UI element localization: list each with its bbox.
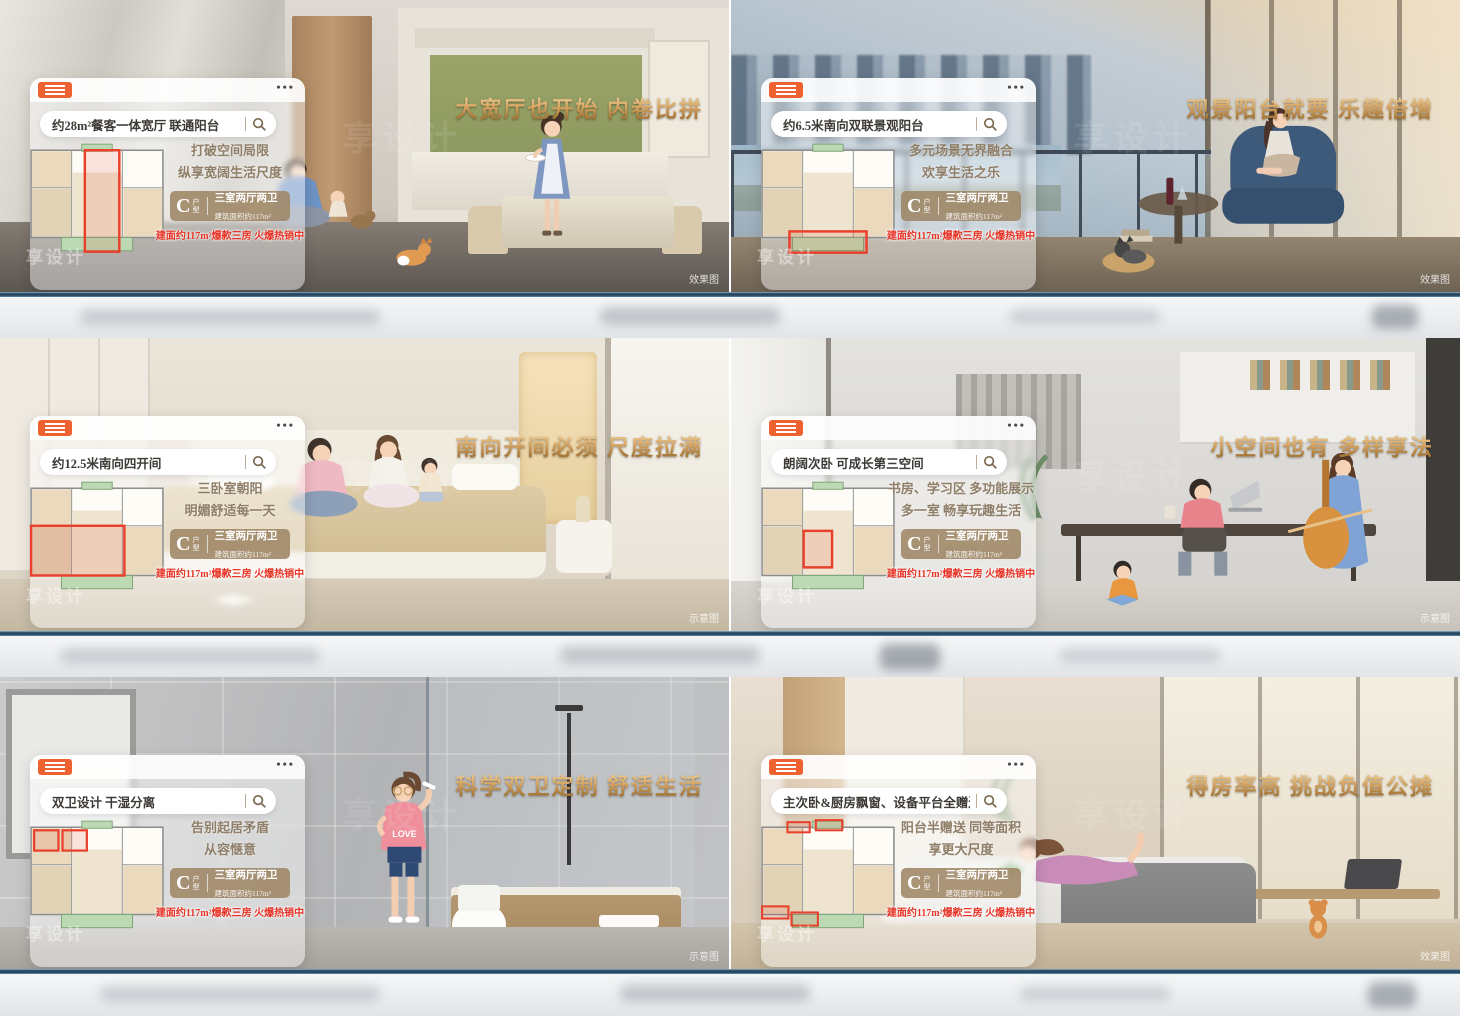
watermark: 享设计 xyxy=(757,582,817,607)
laptop xyxy=(1344,859,1402,889)
tagline: 书房、学习区 多功能展示多一室 畅享玩趣生活 xyxy=(887,478,1035,522)
search-divider xyxy=(245,117,246,131)
browser-card-bar: ••• xyxy=(30,755,305,779)
panel-headline: 大宽厅也开始 内卷比拼 xyxy=(455,92,703,124)
promo-text: 建面约117m²爆款三房 火爆热销中 xyxy=(142,565,318,580)
search-divider xyxy=(976,117,977,131)
toilet xyxy=(452,903,506,951)
more-dots-icon[interactable]: ••• xyxy=(1007,80,1026,95)
unit-badge: C户型 三室两厅两卫建筑面积约117m² xyxy=(901,529,1021,559)
search-divider xyxy=(976,794,977,808)
promo-text: 建面约117m²爆款三房 火爆热销中 xyxy=(873,565,1049,580)
floorplan-highlight xyxy=(31,526,124,576)
panel-headline: 小空间也有 多样享法 xyxy=(1210,430,1434,462)
watermark: 享设计 xyxy=(26,243,86,268)
tagline: 阳台半赠送 同等面积享更大尺度 xyxy=(887,817,1035,861)
dark-cabinet xyxy=(1426,338,1460,631)
watermark: 享设计 xyxy=(343,788,463,837)
unit-badge: C户型 三室两厅两卫建筑面积约117m² xyxy=(901,868,1021,898)
browser-card-bar: ••• xyxy=(761,78,1036,102)
watermark: 享设计 xyxy=(1074,788,1194,837)
promo-text: 建面约117m²爆款三房 火爆热销中 xyxy=(873,227,1049,242)
hamburger-menu-icon[interactable] xyxy=(769,82,803,98)
blanket xyxy=(1061,863,1256,959)
unit-badge: C户型 三室两厅两卫建筑面积约117m² xyxy=(170,529,290,559)
watermark: 享设计 xyxy=(26,920,86,945)
tagline: 打破空间局限纵享宽阔生活尺度 xyxy=(156,140,304,184)
watermark: 享设计 xyxy=(343,449,463,498)
poster-grid: 大宽厅也开始 内卷比拼 ••• 约28m²餐客一体宽厅 联通阳台 xyxy=(0,0,1460,1016)
watermark: 享设计 xyxy=(1074,449,1194,498)
svg-text:LOVE: LOVE xyxy=(392,829,416,839)
panel-headline: 南向开间必须 尺度拉满 xyxy=(455,430,703,462)
browser-card-bar: ••• xyxy=(30,78,305,102)
tagline: 告别起居矛盾从容惬意 xyxy=(156,817,304,861)
blurred-strip xyxy=(0,636,1460,677)
poster-view-balcony: 观景阳台就要 乐趣倍增 ••• 约6.5米南向双联景观阳台 xyxy=(731,0,1460,292)
search-text: 主次卧&厨房飘窗、设备平台全赠送 xyxy=(771,792,970,811)
floorplan-highlight xyxy=(34,830,58,850)
poster-flex-room: 小空间也有 多样享法 ••• 朗阔次卧 可成长第三空间 xyxy=(731,338,1460,631)
search-divider xyxy=(245,455,246,469)
photo-tag: 示意图 xyxy=(689,610,719,625)
search-input[interactable]: 约6.5米南向双联景观阳台 xyxy=(771,111,1007,137)
promo-text: 建面约117m²爆款三房 火爆热销中 xyxy=(873,904,1049,919)
photo-tag: 效果图 xyxy=(1420,271,1450,286)
floorplan-highlight xyxy=(85,150,119,251)
browser-card-bar: ••• xyxy=(761,755,1036,779)
poster-wide-living: 大宽厅也开始 内卷比拼 ••• 约28m²餐客一体宽厅 联通阳台 xyxy=(0,0,729,292)
watermark: 享设计 xyxy=(1074,111,1194,160)
search-input[interactable]: 主次卧&厨房飘窗、设备平台全赠送 xyxy=(771,788,1007,814)
watermark: 享设计 xyxy=(757,243,817,268)
hamburger-menu-icon[interactable] xyxy=(38,82,72,98)
browser-card-bar: ••• xyxy=(30,416,305,440)
hamburger-menu-icon[interactable] xyxy=(38,759,72,775)
magnifier-icon xyxy=(983,117,998,132)
magnifier-icon xyxy=(252,455,267,470)
more-dots-icon[interactable]: ••• xyxy=(1007,418,1026,433)
more-dots-icon[interactable]: ••• xyxy=(276,418,295,433)
dining-table xyxy=(502,196,674,248)
more-dots-icon[interactable]: ••• xyxy=(1007,757,1026,772)
unit-badge: C户型 三室两厅两卫建筑面积约117m² xyxy=(170,191,290,221)
search-input[interactable]: 约28m²餐客一体宽厅 联通阳台 xyxy=(40,111,276,137)
nightstand xyxy=(556,520,612,576)
unit-badge: C户型 三室两厅两卫建筑面积约117m² xyxy=(901,191,1021,221)
floorplan-highlight xyxy=(63,830,87,850)
search-divider xyxy=(976,455,977,469)
vanity xyxy=(451,887,681,953)
unit-badge: C户型 三室两厅两卫建筑面积约117m² xyxy=(170,868,290,898)
promo-text: 建面约117m²爆款三房 火爆热销中 xyxy=(142,227,318,242)
chair xyxy=(468,206,508,254)
desk xyxy=(1061,524,1376,536)
browser-card-bar: ••• xyxy=(761,416,1036,440)
search-divider xyxy=(245,794,246,808)
photo-tag: 效果图 xyxy=(689,271,719,286)
search-text: 朗阔次卧 可成长第三空间 xyxy=(771,453,970,472)
search-text: 约12.5米南向四开间 xyxy=(40,453,239,472)
more-dots-icon[interactable]: ••• xyxy=(276,80,295,95)
poster-south-bays: 南向开间必须 尺度拉满 ••• 约12.5米南向四开间 xyxy=(0,338,729,631)
window-wall xyxy=(1205,0,1460,292)
search-input[interactable]: 朗阔次卧 可成长第三空间 xyxy=(771,449,1007,475)
floorplan-highlight xyxy=(816,820,842,830)
photo-tag: 示意图 xyxy=(1420,610,1450,625)
books xyxy=(1250,360,1400,390)
hamburger-menu-icon[interactable] xyxy=(38,420,72,436)
search-text: 约28m²餐客一体宽厅 联通阳台 xyxy=(40,115,239,134)
hamburger-menu-icon[interactable] xyxy=(769,420,803,436)
magnifier-icon xyxy=(983,794,998,809)
poster-dual-bath: LOVE 科学双卫定制 舒适生活 ••• 双卫设计 干湿分离 xyxy=(0,677,729,969)
panel-headline: 得房率高 挑战负值公摊 xyxy=(1186,769,1434,801)
search-text: 约6.5米南向双联景观阳台 xyxy=(771,115,970,134)
search-input[interactable]: 双卫设计 干湿分离 xyxy=(40,788,276,814)
more-dots-icon[interactable]: ••• xyxy=(276,757,295,772)
magnifier-icon xyxy=(252,117,267,132)
floorplan-highlight xyxy=(804,531,832,568)
divider-band xyxy=(0,969,1460,1016)
poster-gift-area: 得房率高 挑战负值公摊 ••• 主次卧&厨房飘窗、设备平台全赠送 xyxy=(731,677,1460,969)
floorplan-highlight xyxy=(762,906,788,918)
blurred-strip xyxy=(0,974,1460,1016)
photo-tag: 效果图 xyxy=(1420,948,1450,963)
shower-head xyxy=(555,705,583,711)
divider-band xyxy=(0,292,1460,338)
divider-band xyxy=(0,631,1460,677)
panel-headline: 科学双卫定制 舒适生活 xyxy=(455,769,703,801)
magnifier-icon xyxy=(252,794,267,809)
shower-glass xyxy=(426,677,695,929)
search-text: 双卫设计 干湿分离 xyxy=(40,792,239,811)
watermark: 享设计 xyxy=(757,920,817,945)
watermark: 享设计 xyxy=(343,111,463,160)
pillow xyxy=(452,464,518,490)
chair xyxy=(662,206,702,254)
panel-headline: 观景阳台就要 乐趣倍增 xyxy=(1186,92,1434,124)
towel xyxy=(599,915,659,927)
blurred-strip xyxy=(0,297,1460,338)
watermark: 享设计 xyxy=(26,582,86,607)
hamburger-menu-icon[interactable] xyxy=(769,759,803,775)
promo-text: 建面约117m²爆款三房 火爆热销中 xyxy=(142,904,318,919)
tagline: 多元场景无界融合欢享生活之乐 xyxy=(887,140,1035,184)
photo-tag: 示意图 xyxy=(689,948,719,963)
tagline: 三卧室朝阳明媚舒适每一天 xyxy=(156,478,304,522)
lamp xyxy=(576,496,590,522)
desk xyxy=(1230,889,1440,899)
floorplan-highlight xyxy=(787,822,809,832)
magnifier-icon xyxy=(983,455,998,470)
search-input[interactable]: 约12.5米南向四开间 xyxy=(40,449,276,475)
